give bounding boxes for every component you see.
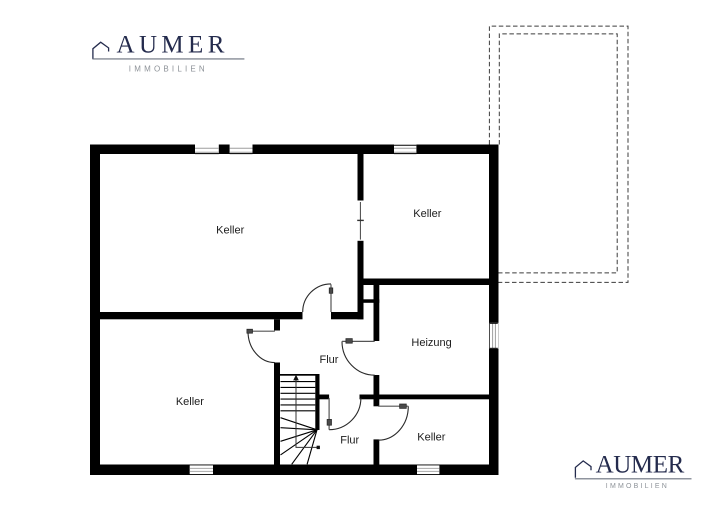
svg-text:Flur: Flur bbox=[320, 354, 339, 366]
svg-text:AUMER: AUMER bbox=[596, 452, 685, 479]
svg-text:IMMOBILIEN: IMMOBILIEN bbox=[129, 64, 208, 73]
svg-text:Keller: Keller bbox=[413, 208, 441, 220]
svg-text:Heizung: Heizung bbox=[411, 337, 451, 349]
svg-text:Keller: Keller bbox=[216, 225, 244, 237]
svg-text:IMMOBILIEN: IMMOBILIEN bbox=[606, 483, 669, 490]
svg-text:Flur: Flur bbox=[340, 435, 359, 447]
svg-text:AUMER: AUMER bbox=[117, 31, 229, 58]
svg-text:Keller: Keller bbox=[417, 431, 445, 443]
svg-text:Keller: Keller bbox=[176, 396, 204, 408]
